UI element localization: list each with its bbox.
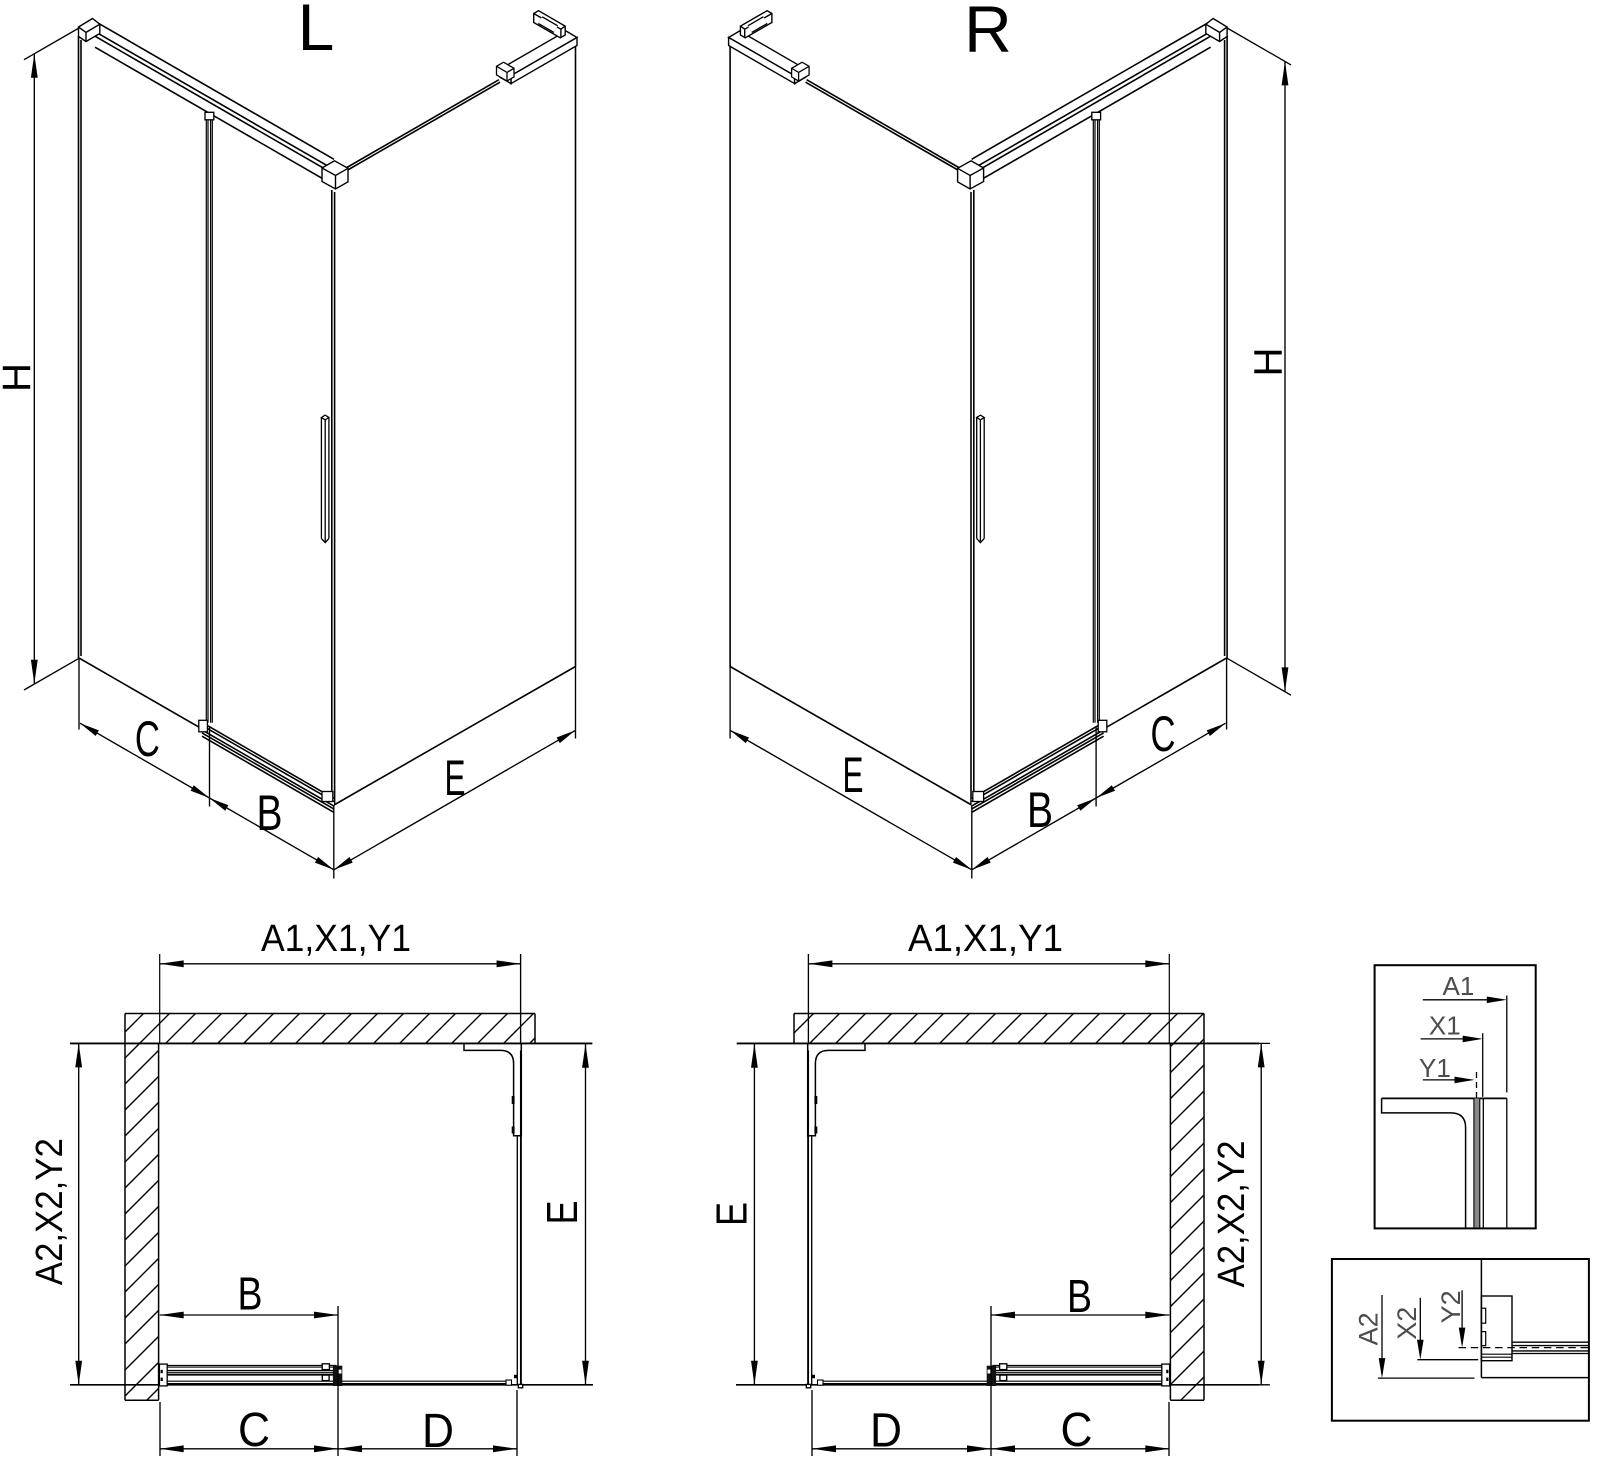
svg-text:L: L (298, 0, 335, 64)
svg-text:C: C (135, 711, 160, 767)
svg-text:R: R (964, 0, 1012, 66)
svg-text:E: E (843, 747, 864, 803)
svg-text:C: C (238, 1404, 270, 1457)
svg-text:E: E (708, 1202, 757, 1226)
svg-text:A2,X2,Y2: A2,X2,Y2 (1211, 1141, 1253, 1288)
svg-text:B: B (238, 1268, 263, 1320)
svg-text:A1: A1 (1442, 971, 1474, 1001)
svg-text:B: B (1067, 1270, 1092, 1322)
svg-text:Y2: Y2 (1436, 1290, 1466, 1323)
svg-text:D: D (870, 1405, 902, 1458)
svg-text:X2: X2 (1392, 1307, 1422, 1340)
svg-text:E: E (538, 1201, 587, 1225)
svg-text:B: B (257, 785, 283, 841)
svg-text:A1,X1,Y1: A1,X1,Y1 (908, 918, 1063, 960)
svg-text:C: C (1151, 706, 1176, 762)
svg-text:B: B (1027, 782, 1053, 838)
svg-text:D: D (422, 1405, 454, 1458)
svg-text:A2: A2 (1354, 1312, 1384, 1345)
svg-text:H: H (1247, 348, 1291, 377)
svg-text:C: C (1061, 1404, 1093, 1457)
svg-text:E: E (445, 750, 466, 806)
svg-text:H: H (0, 363, 39, 392)
svg-text:X1: X1 (1429, 1010, 1461, 1040)
svg-text:A1,X1,Y1: A1,X1,Y1 (261, 918, 411, 960)
svg-text:A2,X2,Y2: A2,X2,Y2 (29, 1138, 71, 1285)
svg-text:Y1: Y1 (1419, 1053, 1451, 1083)
